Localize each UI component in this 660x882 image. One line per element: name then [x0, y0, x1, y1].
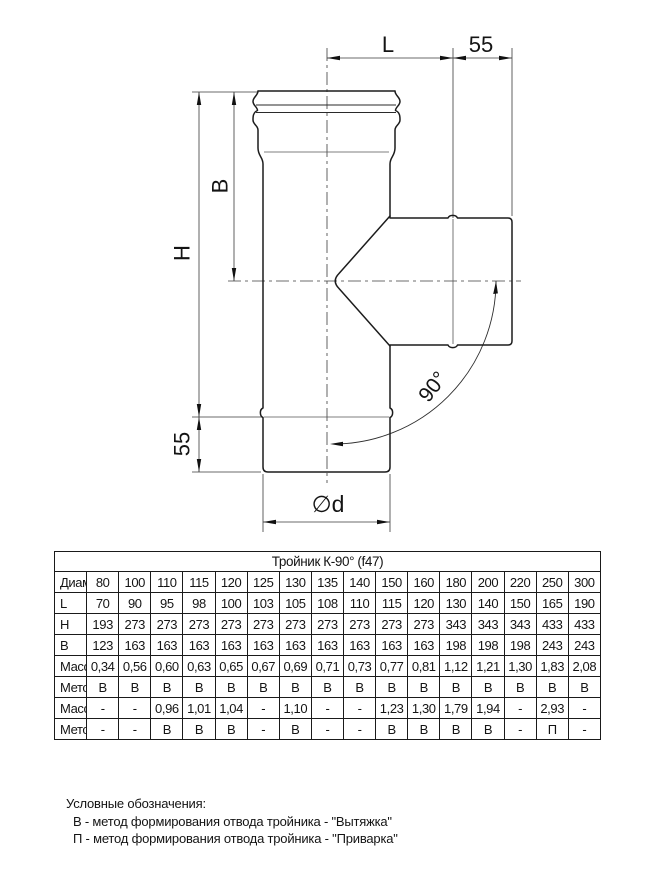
table-cell: - [311, 698, 343, 719]
table-cell: 123 [87, 635, 119, 656]
table-cell: 1,23 [376, 698, 408, 719]
spec-table-body: Диаметр801001101151201251301351401501601… [55, 572, 601, 740]
table-cell: 105 [279, 593, 311, 614]
table-cell: 0,56 [119, 656, 151, 677]
extension-dimension-lines [192, 48, 512, 532]
table-cell: 198 [440, 635, 472, 656]
table-cell: В [536, 677, 568, 698]
table-cell: 0,63 [183, 656, 215, 677]
table-cell: - [568, 698, 600, 719]
table-cell: В [183, 719, 215, 740]
table-cell: 0,81 [408, 656, 440, 677]
fitting-outline [253, 91, 512, 472]
table-cell: 0,65 [215, 656, 247, 677]
table-cell: 163 [215, 635, 247, 656]
table-cell: 90 [119, 593, 151, 614]
table-cell: - [504, 719, 536, 740]
table-cell: 2,93 [536, 698, 568, 719]
table-cell: 1,30 [408, 698, 440, 719]
table-row: Масса 0,8--0,961,011,04-1,10--1,231,301,… [55, 698, 601, 719]
table-cell: В [376, 719, 408, 740]
table-cell: - [568, 719, 600, 740]
table-cell: 130 [279, 572, 311, 593]
table-row: Метод 0,8--ВВВ-В--ВВВВ-П- [55, 719, 601, 740]
table-cell: 0,71 [311, 656, 343, 677]
table-cell: 273 [408, 614, 440, 635]
row-label: Диаметр [55, 572, 87, 593]
row-label: B [55, 635, 87, 656]
table-cell: 0,96 [151, 698, 183, 719]
table-cell: 100 [119, 572, 151, 593]
label-H: H [170, 245, 195, 261]
table-cell: В [151, 677, 183, 698]
table-cell: 110 [343, 593, 375, 614]
table-cell: 150 [376, 572, 408, 593]
table-cell: 110 [151, 572, 183, 593]
table-cell: 1,94 [472, 698, 504, 719]
table-cell: 1,21 [472, 656, 504, 677]
table-cell: 343 [472, 614, 504, 635]
table-cell: 193 [87, 614, 119, 635]
table-cell: В [119, 677, 151, 698]
table-cell: 1,30 [504, 656, 536, 677]
table-cell: 180 [440, 572, 472, 593]
table-row: H193273273273273273273273273273273343343… [55, 614, 601, 635]
table-cell: В [408, 677, 440, 698]
table-cell: - [343, 719, 375, 740]
label-top-55: 55 [469, 32, 493, 57]
table-cell: - [87, 719, 119, 740]
table-cell: 163 [376, 635, 408, 656]
table-cell: 0,34 [87, 656, 119, 677]
label-L: L [382, 32, 394, 57]
table-cell: 2,08 [568, 656, 600, 677]
table-cell: 0,73 [343, 656, 375, 677]
table-cell: 200 [472, 572, 504, 593]
branch-outline [390, 215, 512, 347]
table-cell: В [408, 719, 440, 740]
table-cell: 140 [472, 593, 504, 614]
table-cell: 243 [568, 635, 600, 656]
table-cell: В [568, 677, 600, 698]
crimp-lines [264, 152, 453, 417]
pipe-left-bottom-right [253, 91, 393, 472]
table-cell: В [472, 719, 504, 740]
table-row: Диаметр801001101151201251301351401501601… [55, 572, 601, 593]
table-cell: В [279, 719, 311, 740]
table-cell: 125 [247, 572, 279, 593]
page: { "drawing": { "labels": { "length_l": "… [0, 0, 660, 882]
angle-arc [333, 281, 496, 444]
table-cell: 163 [119, 635, 151, 656]
dimension-arrowheads [197, 56, 512, 524]
table-cell: 0,69 [279, 656, 311, 677]
table-cell: В [440, 677, 472, 698]
legend-title: Условные обозначения: [66, 795, 398, 813]
table-cell: 243 [536, 635, 568, 656]
table-cell: В [247, 677, 279, 698]
table-cell: 0,67 [247, 656, 279, 677]
seam-lines [256, 105, 396, 113]
table-cell: В [215, 719, 247, 740]
table-cell: 70 [87, 593, 119, 614]
table-cell: В [87, 677, 119, 698]
legend-item-v: В - метод формирования отвода тройника -… [66, 813, 398, 831]
table-cell: В [376, 677, 408, 698]
table-cell: 433 [536, 614, 568, 635]
row-label: L [55, 593, 87, 614]
table-cell: В [472, 677, 504, 698]
table-cell: 273 [376, 614, 408, 635]
table-row: L709095981001031051081101151201301401501… [55, 593, 601, 614]
table-cell: - [343, 698, 375, 719]
table-cell: - [247, 719, 279, 740]
table-cell: 433 [568, 614, 600, 635]
table-cell: 165 [536, 593, 568, 614]
table-row: Масса 0,50,340,560,600,630,650,670,690,7… [55, 656, 601, 677]
table-cell: 198 [504, 635, 536, 656]
label-angle-90: 90° [414, 367, 452, 406]
table-cell: 273 [343, 614, 375, 635]
table-cell: 343 [440, 614, 472, 635]
table-cell: 98 [183, 593, 215, 614]
table-cell: - [119, 719, 151, 740]
table-cell: 100 [215, 593, 247, 614]
table-cell: 103 [247, 593, 279, 614]
table-cell: 163 [151, 635, 183, 656]
spec-table: Тройник К-90° (f47) Диаметр8010011011512… [54, 551, 601, 740]
legend: Условные обозначения: В - метод формиров… [66, 795, 398, 848]
table-cell: 198 [472, 635, 504, 656]
table-cell: 1,01 [183, 698, 215, 719]
table-cell: 250 [536, 572, 568, 593]
centerlines [228, 48, 521, 483]
table-row: Метод 0,5ВВВВВВВВВВВВВВВВ [55, 677, 601, 698]
row-label: Масса 0,5 [55, 656, 87, 677]
table-cell: 163 [183, 635, 215, 656]
table-cell: В [215, 677, 247, 698]
table-cell: 1,10 [279, 698, 311, 719]
table-cell: - [504, 698, 536, 719]
table-cell: 108 [311, 593, 343, 614]
table-cell: 135 [311, 572, 343, 593]
table-cell: 163 [343, 635, 375, 656]
table-row: B123163163163163163163163163163163198198… [55, 635, 601, 656]
table-cell: 343 [504, 614, 536, 635]
table-cell: 1,12 [440, 656, 472, 677]
table-cell: 273 [183, 614, 215, 635]
table-cell: 115 [183, 572, 215, 593]
table-cell: В [183, 677, 215, 698]
table-cell: 0,60 [151, 656, 183, 677]
table-cell: 1,79 [440, 698, 472, 719]
table-cell: - [119, 698, 151, 719]
row-label: Метод 0,5 [55, 677, 87, 698]
table-cell: 273 [311, 614, 343, 635]
table-cell: 300 [568, 572, 600, 593]
table-cell: В [311, 677, 343, 698]
table-cell: П [536, 719, 568, 740]
table-cell: 163 [408, 635, 440, 656]
table-cell: 190 [568, 593, 600, 614]
table-title-row: Тройник К-90° (f47) [55, 552, 601, 572]
table-cell: 120 [215, 572, 247, 593]
table-cell: - [247, 698, 279, 719]
table-cell: 1,83 [536, 656, 568, 677]
table-cell: - [87, 698, 119, 719]
table-cell: 273 [119, 614, 151, 635]
table-cell: 220 [504, 572, 536, 593]
table-cell: В [504, 677, 536, 698]
table-cell: В [440, 719, 472, 740]
tee-diagram-svg: L 55 B H 55 ∅d 90° [0, 0, 660, 545]
table-cell: 273 [151, 614, 183, 635]
label-diameter: ∅d [312, 491, 345, 517]
row-label: Масса 0,8 [55, 698, 87, 719]
tee-technical-drawing: L 55 B H 55 ∅d 90° [0, 0, 660, 545]
table-cell: 163 [279, 635, 311, 656]
table-cell: - [311, 719, 343, 740]
row-label: Метод 0,8 [55, 719, 87, 740]
table-cell: 0,77 [376, 656, 408, 677]
table-cell: 95 [151, 593, 183, 614]
table-cell: В [151, 719, 183, 740]
table-cell: 273 [247, 614, 279, 635]
table-cell: В [279, 677, 311, 698]
table-cell: 115 [376, 593, 408, 614]
table-cell: 163 [247, 635, 279, 656]
legend-item-p: П - метод формирования отвода тройника -… [66, 830, 398, 848]
table-cell: 273 [215, 614, 247, 635]
table-cell: 120 [408, 593, 440, 614]
table-cell: 80 [87, 572, 119, 593]
table-cell: 150 [504, 593, 536, 614]
spec-table-head: Тройник К-90° (f47) [55, 552, 601, 572]
table-cell: 130 [440, 593, 472, 614]
table-cell: 160 [408, 572, 440, 593]
pipe-right-upper [390, 91, 400, 217]
table-cell: 273 [279, 614, 311, 635]
table-cell: 140 [343, 572, 375, 593]
label-B: B [208, 179, 233, 194]
table-cell: 1,04 [215, 698, 247, 719]
label-bottom-55: 55 [170, 432, 195, 456]
table-title: Тройник К-90° (f47) [55, 552, 601, 572]
row-label: H [55, 614, 87, 635]
table-cell: 163 [311, 635, 343, 656]
table-cell: В [343, 677, 375, 698]
